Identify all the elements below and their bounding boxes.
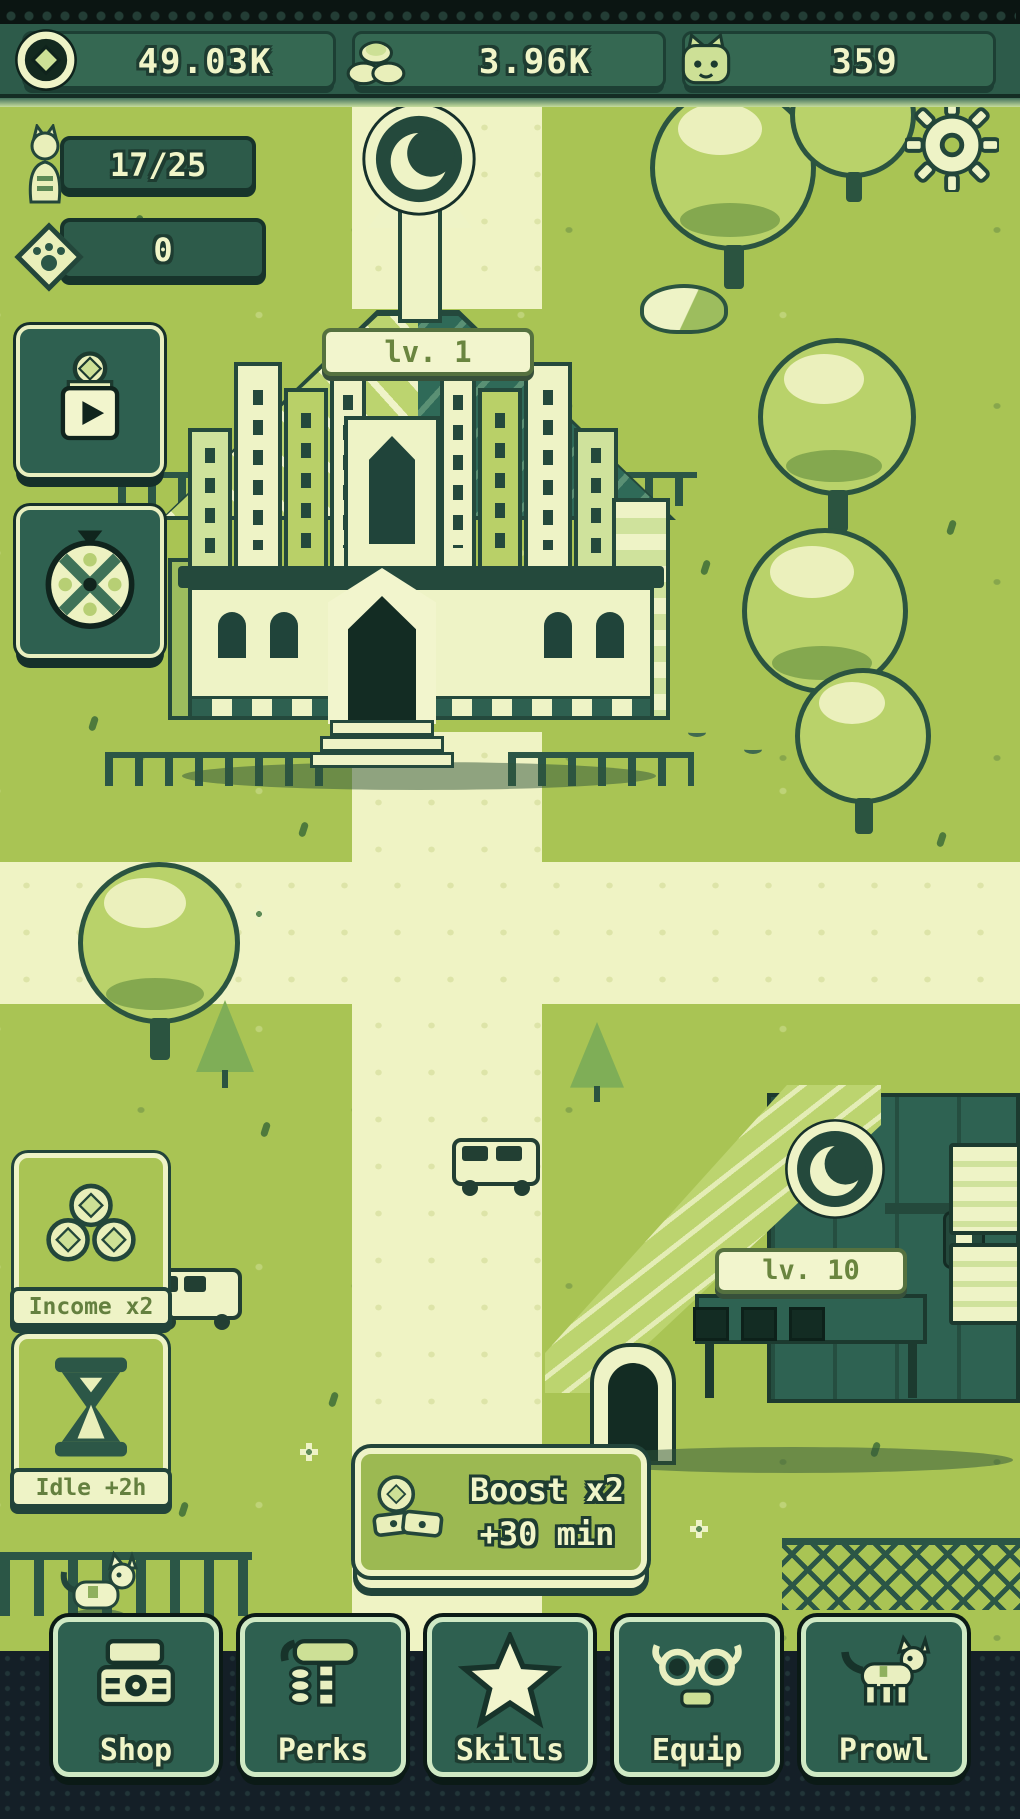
income-boost-button[interactable]: Income x2 — [14, 1153, 168, 1327]
cats-counter[interactable]: 359 — [682, 31, 996, 89]
gems-counter[interactable]: 49.03K — [22, 31, 336, 89]
grass-tuft — [700, 559, 711, 575]
cash-register-icon — [58, 1632, 214, 1724]
crescent-cat-sign-icon — [360, 100, 478, 218]
bottom-nav: Shop — [0, 1651, 1020, 1819]
statusbar-separator — [0, 98, 1020, 107]
gothic-window — [344, 416, 440, 580]
cat-walking-icon — [806, 1632, 962, 1724]
gems-value: 49.03K — [89, 42, 321, 82]
nav-perks-button[interactable]: Perks — [240, 1617, 406, 1777]
coins-value: 3.96K — [419, 42, 651, 82]
spin-wheel-icon — [36, 526, 144, 638]
crate — [949, 1243, 1020, 1325]
coins-counter[interactable]: 3.96K — [352, 31, 666, 89]
cat-sprite[interactable] — [58, 1548, 138, 1624]
nav-equip-label: Equip — [619, 1733, 775, 1768]
boost-banner-title: Boost x2 — [453, 1468, 641, 1512]
boost-banner-button[interactable]: Boost x2 +30 min — [355, 1448, 647, 1576]
nav-perks-label: Perks — [245, 1733, 401, 1768]
top-bezel — [0, 0, 1020, 24]
settings-button[interactable] — [905, 98, 999, 192]
flower — [300, 1443, 318, 1461]
game-screen: lv. 1 — [0, 0, 1020, 1819]
bush — [196, 1000, 254, 1088]
crescent-cat-sign-icon — [783, 1117, 901, 1235]
nav-shop-button[interactable]: Shop — [53, 1617, 219, 1777]
car — [452, 1138, 540, 1196]
tickets-value: 0 — [153, 231, 172, 269]
nav-prowl-label: Prowl — [806, 1733, 962, 1768]
cat-statue-icon — [12, 124, 78, 208]
crate — [949, 1143, 1020, 1235]
glasses-icon — [619, 1632, 775, 1724]
cathedral-level-label: lv. 1 — [322, 328, 534, 376]
tree — [795, 668, 935, 836]
grass-tuft — [328, 1391, 339, 1407]
boost-banner-subtitle: +30 min — [453, 1512, 641, 1556]
bird — [744, 745, 762, 754]
idle-boost-label: Idle +2h — [10, 1468, 172, 1508]
nav-prowl-button[interactable]: Prowl — [801, 1617, 967, 1777]
shop-door — [590, 1343, 676, 1465]
nav-skills-button[interactable]: Skills — [427, 1617, 593, 1777]
cats-count-badge[interactable]: 17/25 — [60, 136, 256, 192]
grass-tuft — [298, 821, 309, 837]
income-boost-label: Income x2 — [10, 1287, 172, 1327]
coin-pile-icon — [36, 1171, 146, 1285]
gear-icon — [905, 98, 999, 192]
ad-reward-button[interactable] — [16, 325, 164, 477]
shop-building[interactable]: lv. 10 — [545, 1085, 1020, 1470]
star-icon — [432, 1632, 588, 1729]
grass-tuft — [260, 1121, 271, 1137]
hourglass-icon — [37, 1353, 145, 1465]
nav-shop-label: Shop — [58, 1733, 214, 1768]
bird — [688, 728, 706, 737]
gem-icon — [13, 27, 79, 93]
status-bar: 49.03K 3.96K — [0, 24, 1020, 98]
tree — [758, 338, 920, 534]
video-reward-icon — [38, 347, 142, 455]
coins-icon — [343, 27, 409, 93]
fence-lattice — [782, 1538, 1020, 1610]
flower — [690, 1520, 708, 1538]
flower — [250, 905, 268, 923]
tickets-badge[interactable]: 0 — [60, 218, 266, 280]
spin-wheel-button[interactable] — [16, 506, 164, 658]
idle-boost-button[interactable]: Idle +2h — [14, 1334, 168, 1508]
cat-face-icon — [673, 27, 739, 93]
cathedral-building[interactable]: lv. 1 — [172, 268, 670, 798]
grass-tuft — [178, 1501, 189, 1517]
cats-value: 359 — [749, 42, 981, 82]
nav-equip-button[interactable]: Equip — [614, 1617, 780, 1777]
grass-tuft — [936, 831, 947, 847]
coin-money-icon — [361, 1469, 453, 1555]
shop-level-label: lv. 10 — [715, 1248, 907, 1294]
grass-tuft — [946, 519, 957, 535]
cats-count-value: 17/25 — [110, 146, 206, 184]
grass-tuft — [88, 715, 99, 731]
nav-skills-label: Skills — [432, 1733, 588, 1768]
paw-diamond-icon — [6, 214, 92, 300]
hammer-icon — [245, 1632, 401, 1724]
